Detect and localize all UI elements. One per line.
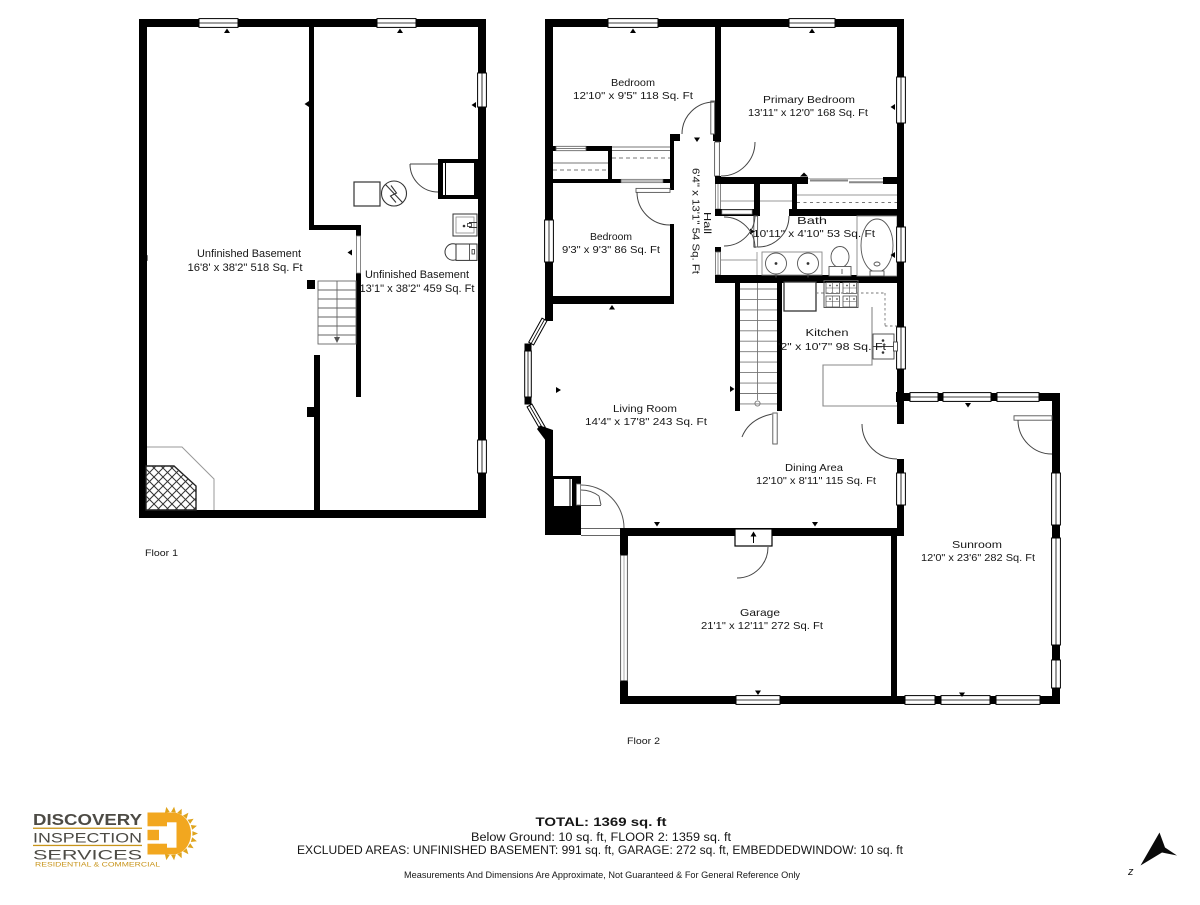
svg-text:Sunroom: Sunroom bbox=[952, 539, 1002, 551]
svg-text:'2" x 10'7" 98 Sq. Ft: '2" x 10'7" 98 Sq. Ft bbox=[778, 341, 886, 353]
svg-text:EXCLUDED AREAS: UNFINISHED BAS: EXCLUDED AREAS: UNFINISHED BASEMENT: 991… bbox=[297, 845, 904, 857]
svg-text:Hall: Hall bbox=[701, 212, 713, 234]
svg-text:Kitchen: Kitchen bbox=[806, 327, 849, 339]
svg-text:z: z bbox=[1127, 866, 1134, 878]
svg-text:INSPECTION: INSPECTION bbox=[33, 830, 142, 846]
svg-text:Measurements And Dimensions Ar: Measurements And Dimensions Are Approxim… bbox=[404, 870, 800, 881]
svg-text:13'1" x 38'2" 459 Sq. Ft: 13'1" x 38'2" 459 Sq. Ft bbox=[360, 283, 475, 295]
svg-text:Below Ground: 10 sq. ft, FLOOR: Below Ground: 10 sq. ft, FLOOR 2: 1359 s… bbox=[471, 832, 732, 844]
svg-text:14'4" x 17'8" 243 Sq. Ft: 14'4" x 17'8" 243 Sq. Ft bbox=[585, 416, 707, 428]
svg-text:Garage: Garage bbox=[740, 607, 780, 619]
svg-text:Living Room: Living Room bbox=[613, 403, 677, 415]
svg-text:10'11" x 4'10" 53 Sq. Ft: 10'11" x 4'10" 53 Sq. Ft bbox=[753, 228, 875, 240]
svg-text:9'3" x 9'3" 86 Sq. Ft: 9'3" x 9'3" 86 Sq. Ft bbox=[562, 244, 660, 256]
svg-text:6'4" x 13'1" 54 Sq. Ft: 6'4" x 13'1" 54 Sq. Ft bbox=[690, 168, 702, 274]
svg-text:12'10" x 8'11" 115 Sq. Ft: 12'10" x 8'11" 115 Sq. Ft bbox=[756, 475, 876, 487]
svg-text:Dining Area: Dining Area bbox=[785, 462, 843, 474]
svg-text:13'11" x 12'0" 168 Sq. Ft: 13'11" x 12'0" 168 Sq. Ft bbox=[748, 107, 868, 119]
svg-text:21'1" x 12'11" 272 Sq. Ft: 21'1" x 12'11" 272 Sq. Ft bbox=[701, 620, 823, 632]
svg-text:TOTAL: 1369 sq. ft: TOTAL: 1369 sq. ft bbox=[536, 815, 667, 829]
svg-text:DISCOVERY: DISCOVERY bbox=[33, 812, 143, 829]
svg-text:RESIDENTIAL & COMMERCIAL: RESIDENTIAL & COMMERCIAL bbox=[35, 862, 160, 869]
svg-text:Floor 2: Floor 2 bbox=[627, 736, 660, 747]
svg-text:Bedroom: Bedroom bbox=[590, 231, 632, 243]
svg-text:16'8' x 38'2" 518 Sq. Ft: 16'8' x 38'2" 518 Sq. Ft bbox=[188, 262, 303, 274]
svg-text:SERVICES: SERVICES bbox=[33, 847, 142, 863]
svg-text:12'0" x 23'6" 282 Sq. Ft: 12'0" x 23'6" 282 Sq. Ft bbox=[921, 552, 1035, 564]
svg-text:Bedroom: Bedroom bbox=[611, 77, 655, 89]
svg-text:Bath: Bath bbox=[797, 215, 827, 227]
svg-text:12'10" x 9'5" 118 Sq. Ft: 12'10" x 9'5" 118 Sq. Ft bbox=[573, 90, 693, 102]
svg-text:Primary Bedroom: Primary Bedroom bbox=[763, 94, 855, 106]
svg-text:Floor 1: Floor 1 bbox=[145, 548, 178, 559]
svg-text:Unfinished Basement: Unfinished Basement bbox=[197, 248, 301, 260]
svg-text:Unfinished Basement: Unfinished Basement bbox=[365, 269, 469, 281]
